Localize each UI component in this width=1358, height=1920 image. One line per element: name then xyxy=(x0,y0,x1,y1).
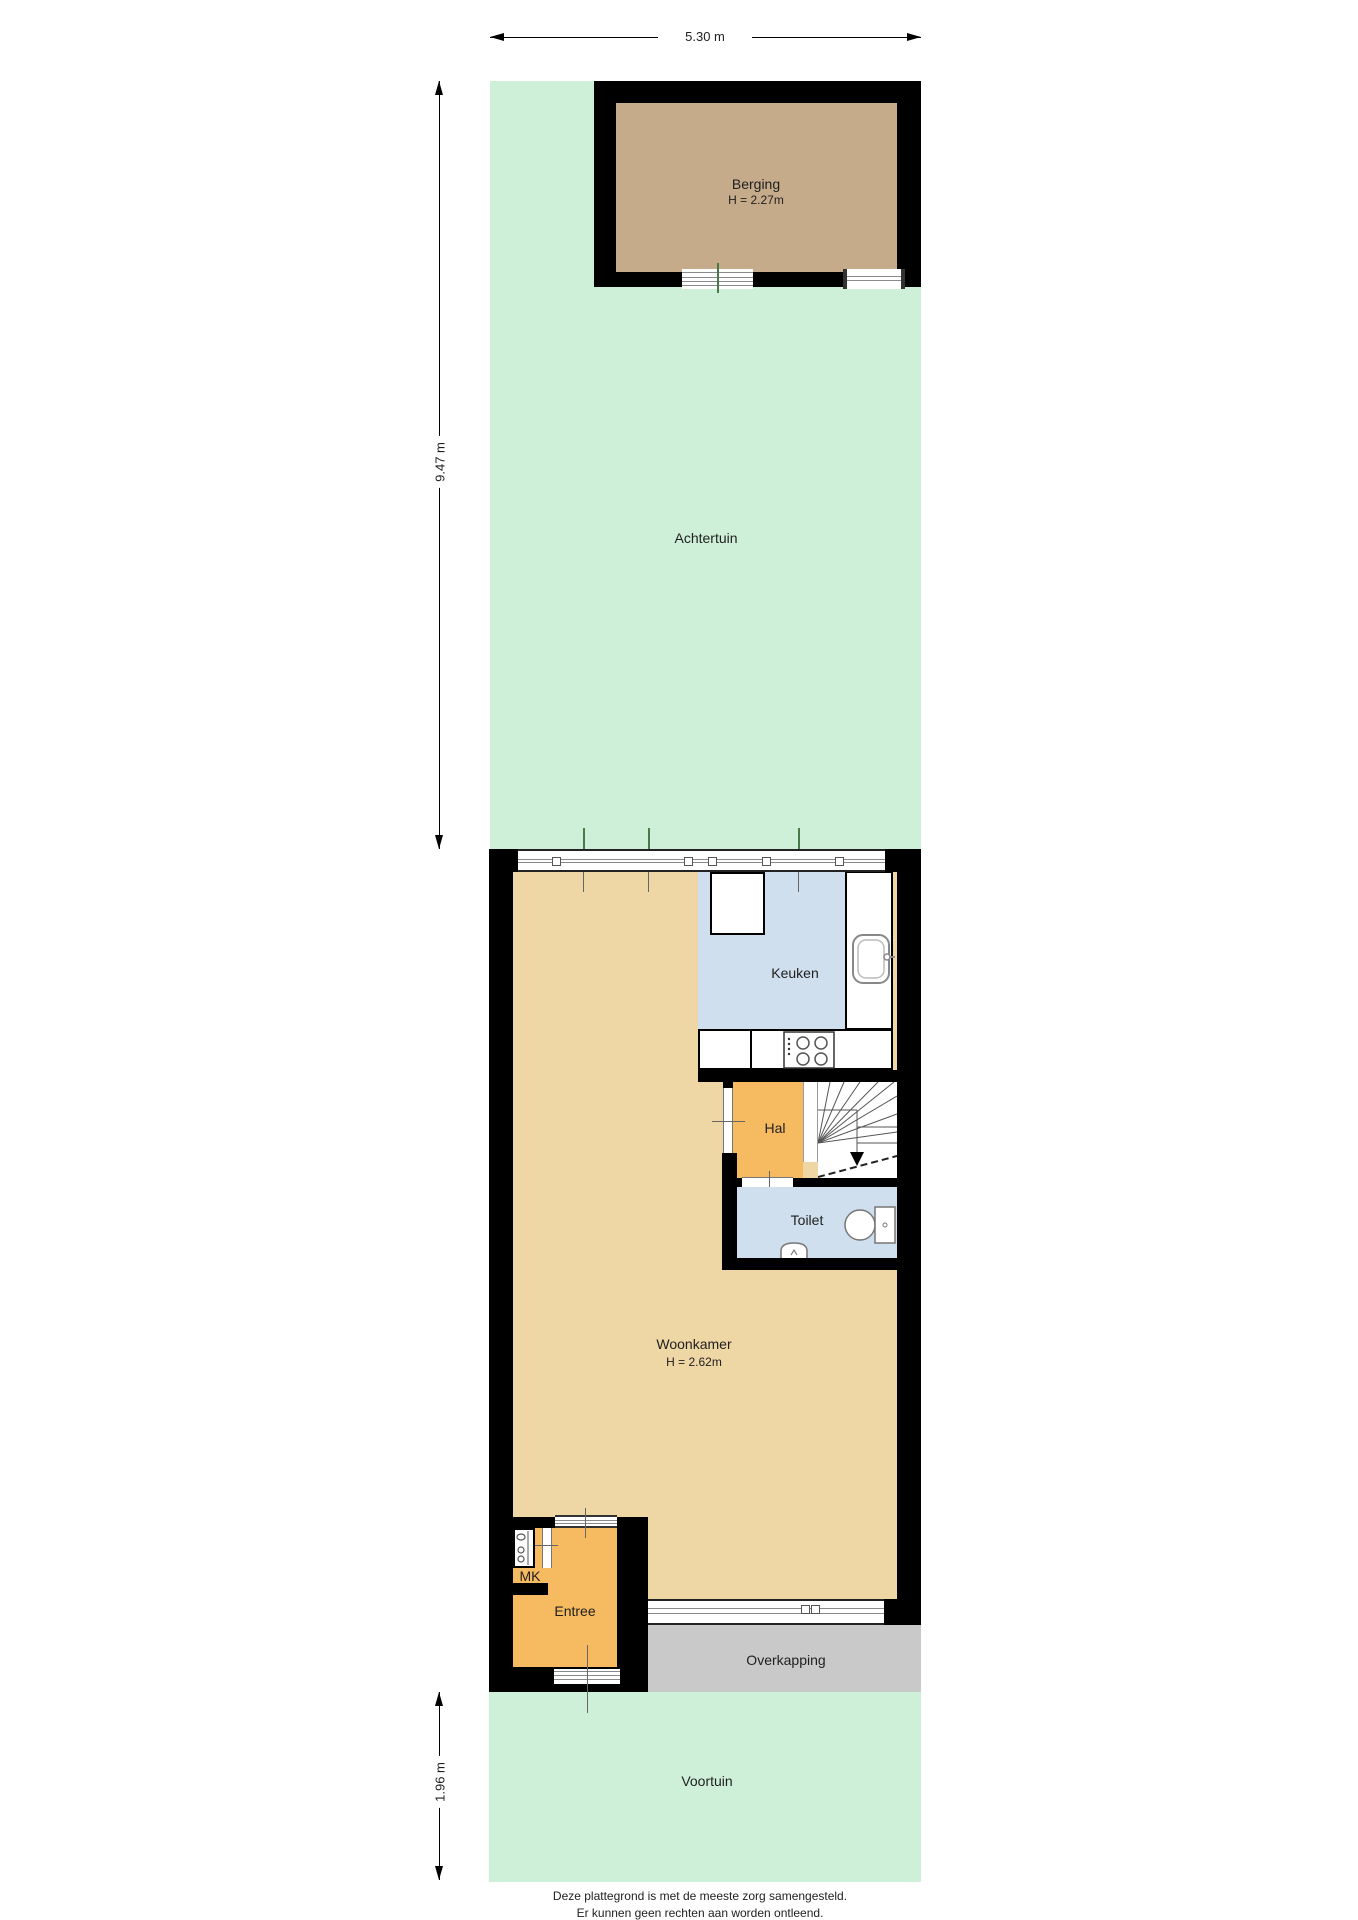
kitchen-appliance xyxy=(710,872,765,935)
entree-label: Entree xyxy=(554,1603,595,1619)
mk-door-tick xyxy=(535,1545,558,1546)
stairs-down-arrow-icon xyxy=(850,1152,864,1166)
back-garden-upper-strip xyxy=(490,81,594,287)
rear-window-tick-2 xyxy=(648,828,650,849)
toilet-fixture-icon xyxy=(843,1205,897,1245)
rear-window-tick-1 xyxy=(583,828,585,849)
berging-door-tick xyxy=(717,263,719,293)
rear-facade-window xyxy=(518,849,885,872)
mk-top-wall xyxy=(513,1517,555,1528)
rear-window-tick-3 xyxy=(798,828,800,849)
house-left-wall xyxy=(489,872,513,1692)
overkapping-label: Overkapping xyxy=(746,1652,825,1668)
cooktop-icon xyxy=(783,1031,835,1069)
dim-top-arrow-right xyxy=(907,33,921,41)
mk-label: MK xyxy=(520,1568,541,1584)
toilet-bottom-wall xyxy=(722,1258,897,1270)
rear-window-tick-1b xyxy=(583,872,584,892)
hall-door-tick xyxy=(712,1121,745,1122)
house-right-wall xyxy=(897,849,921,1625)
hall-left-wall xyxy=(722,1153,737,1270)
stairs-door-opening xyxy=(803,1082,818,1162)
living-entry-window xyxy=(555,1515,617,1528)
toilet-sink-icon xyxy=(778,1241,810,1259)
entry-right-wall xyxy=(617,1517,648,1692)
living-sliding-door xyxy=(648,1599,884,1625)
toilet-label: Toilet xyxy=(791,1212,824,1228)
disclaimer-line-2: Er kunnen geen rechten aan worden ontlee… xyxy=(350,1906,1050,1920)
dim-front-arrow-down xyxy=(435,1866,443,1880)
back-garden xyxy=(490,287,921,849)
kitchen-sink-icon xyxy=(851,933,895,985)
berging-label: Berging xyxy=(732,176,780,192)
dim-rear-arrow-up xyxy=(435,81,443,95)
disclaimer-line-1: Deze plattegrond is met de meeste zorg s… xyxy=(350,1889,1050,1903)
sliding-door-right-pier xyxy=(884,1599,921,1625)
berging-window xyxy=(843,269,905,289)
kitchen-counter-divider xyxy=(750,1029,752,1070)
dim-rear-label: 9.47 m xyxy=(431,436,450,488)
dim-rear-arrow-down xyxy=(435,835,443,849)
meter-cabinet-icon xyxy=(513,1528,535,1568)
keuken-label: Keuken xyxy=(771,965,818,981)
woonkamer-label: Woonkamer xyxy=(656,1336,731,1352)
kitchen-hall-wall xyxy=(698,1070,897,1082)
berging-height-label: H = 2.27m xyxy=(728,193,784,207)
dim-front-arrow-up xyxy=(435,1692,443,1706)
floorplan-page: Berging H = 2.27m Achtertuin Keuken Hal … xyxy=(0,0,1358,1920)
dim-top-arrow-left xyxy=(490,33,504,41)
mk-bottom-wall xyxy=(513,1583,548,1595)
woonkamer-height-label: H = 2.62m xyxy=(666,1355,722,1369)
mk-door-jamb xyxy=(542,1528,552,1568)
front-door-tick xyxy=(587,1645,588,1713)
voortuin-label: Voortuin xyxy=(681,1773,732,1789)
living-entry-window-tick xyxy=(585,1508,586,1538)
dim-front-label: 1.96 m xyxy=(431,1756,450,1808)
rear-window-tick-2b xyxy=(648,872,649,892)
house-top-left-corner xyxy=(489,849,518,872)
rear-window-tick-3b xyxy=(798,872,799,892)
hal-label: Hal xyxy=(764,1120,785,1136)
staircase xyxy=(818,1082,897,1178)
achtertuin-label: Achtertuin xyxy=(674,530,737,546)
dim-top-label: 5.30 m xyxy=(658,29,752,44)
